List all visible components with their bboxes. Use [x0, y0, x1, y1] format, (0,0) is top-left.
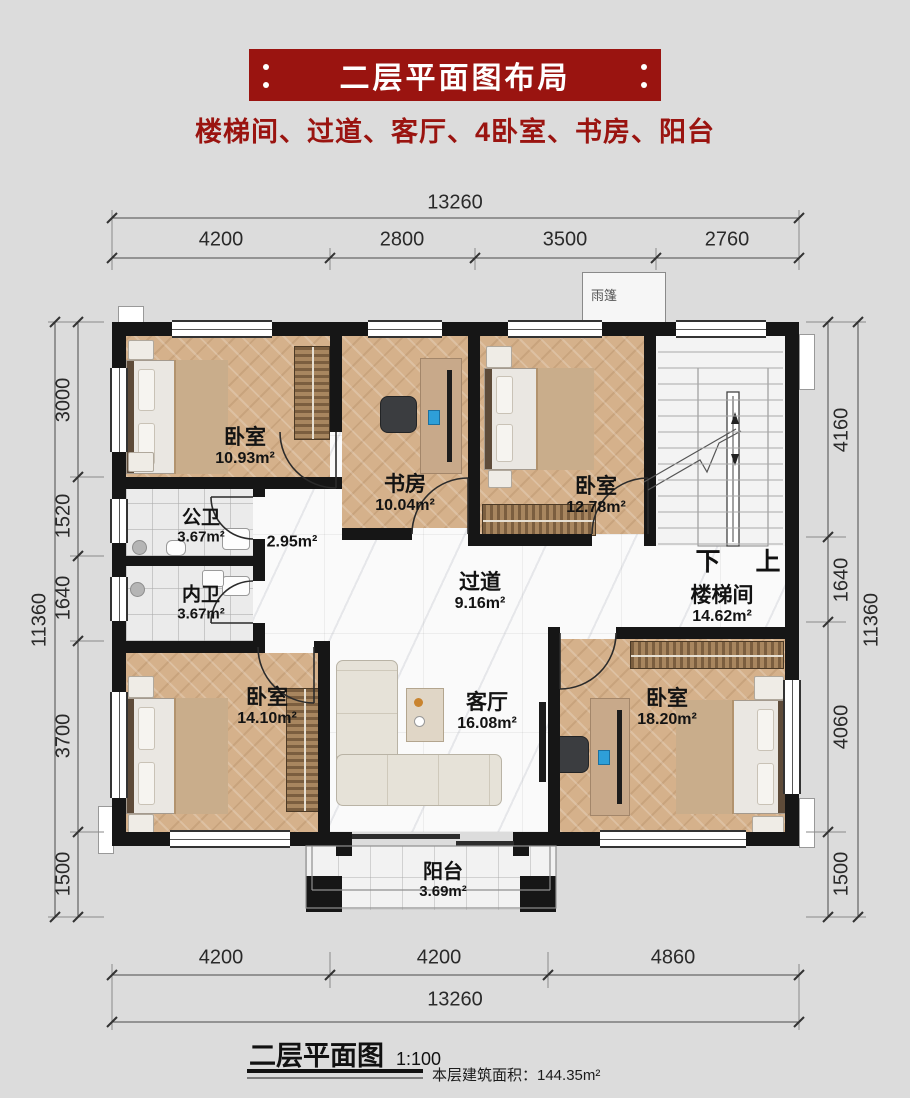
room-label-bedroom-bottom-left: 卧室 14.10m²: [237, 687, 297, 727]
wall: [468, 336, 480, 546]
table-item: [414, 716, 425, 727]
window-pane-line: [119, 499, 120, 543]
dim-left-seg-5: 1500: [53, 852, 76, 897]
desk-item: [428, 410, 440, 425]
window-pane-line: [119, 368, 120, 452]
wall: [548, 627, 560, 832]
room-label-bedroom-top-left: 卧室 10.93m²: [215, 427, 275, 467]
pilaster: [799, 798, 815, 848]
window: [172, 320, 272, 338]
window-pane-line: [119, 577, 120, 621]
desk: [590, 698, 630, 816]
room-label-bedroom-top-right: 卧室 12.78m²: [566, 476, 626, 516]
dim-bottom-seg-2: 4200: [417, 947, 462, 970]
banner-dot: [641, 64, 647, 70]
room-area: 10.04m²: [375, 497, 435, 514]
room-label-stairwell: 楼梯间 14.62m²: [691, 585, 754, 625]
page-title: 二层平面图布局: [340, 53, 571, 97]
banner-dot: [641, 82, 647, 88]
dim-left-total: 11360: [29, 593, 52, 647]
wall: [513, 832, 529, 856]
dim-top-seg-1: 4200: [199, 229, 244, 252]
room-name: 卧室: [215, 427, 275, 450]
wall: [253, 539, 265, 581]
dim-right-seg-4: 1500: [831, 852, 854, 897]
sink: [222, 528, 250, 550]
legend-underline-thin: [247, 1077, 423, 1079]
dim-left-seg-2: 1520: [53, 494, 76, 539]
desk-item: [598, 750, 610, 765]
pillow: [496, 424, 513, 462]
window-pane-line: [792, 680, 793, 794]
window: [110, 692, 128, 798]
window: [110, 577, 128, 621]
wardrobe-rail: [631, 655, 783, 657]
window-pane-line: [600, 839, 746, 840]
stair-up-label: 上: [755, 542, 780, 578]
room-area: 14.62m²: [691, 608, 754, 625]
window-pane-line: [508, 329, 602, 330]
room-label-bedroom-bottom-right: 卧室 18.20m²: [637, 688, 697, 728]
window: [110, 499, 128, 543]
window-pane-line: [676, 329, 766, 330]
wall: [336, 832, 352, 856]
legend-title: 二层平面图1:100: [249, 1034, 441, 1073]
room-name: 楼梯间: [691, 585, 754, 608]
dim-right-seg-1: 4160: [831, 408, 854, 453]
window: [110, 368, 128, 452]
wall: [126, 477, 342, 489]
shower-head: [132, 540, 147, 555]
stair-down-label: 下: [695, 542, 720, 578]
wall: [616, 627, 799, 639]
room-area: 18.20m²: [637, 711, 697, 728]
room-name: 客厅: [457, 692, 517, 715]
bed: [126, 698, 228, 814]
pillow: [138, 369, 155, 411]
dim-bottom-seg-1: 4200: [199, 947, 244, 970]
sofa-chaise: [336, 754, 502, 806]
room-area: 3.67m²: [177, 529, 225, 545]
coffee-table: [406, 688, 444, 742]
dim-right-seg-3: 4060: [831, 705, 854, 750]
pillow: [757, 763, 774, 805]
room-area: 16.08m²: [457, 715, 517, 732]
table-item: [414, 698, 423, 707]
blanket: [536, 368, 594, 470]
small-corridor-area-label: 2.95m²: [267, 533, 318, 550]
sink: [222, 576, 250, 596]
room-area: 3.67m²: [177, 606, 225, 622]
sliding-door: [456, 841, 514, 846]
window-pane-line: [172, 329, 272, 330]
room-area: 14.10m²: [237, 710, 297, 727]
nightstand: [486, 346, 512, 368]
room-area: 2.95m²: [267, 533, 318, 550]
wardrobe-rail: [312, 347, 314, 439]
room-label-inner-bath: 内卫 3.67m²: [177, 586, 225, 623]
room-area: 10.93m²: [215, 450, 275, 467]
wall: [342, 528, 412, 540]
room-area: 12.78m²: [566, 499, 626, 516]
wall: [480, 534, 592, 546]
dim-top-total: 13260: [427, 192, 483, 215]
office-chair: [380, 396, 417, 433]
balcony-column: [520, 876, 556, 912]
pillow: [138, 762, 155, 805]
bed-headboard: [485, 369, 492, 469]
room-name: 内卫: [177, 586, 225, 607]
canopy-label: 雨篷: [591, 285, 617, 304]
dim-left-seg-1: 3000: [53, 378, 76, 423]
room-name: 过道: [455, 572, 506, 595]
room-name: 卧室: [237, 687, 297, 710]
stairwell-floor: [656, 336, 785, 546]
nightstand: [128, 452, 154, 472]
shower-head: [130, 582, 145, 597]
dim-top-seg-4: 2760: [705, 229, 750, 252]
dim-left-seg-3: 1640: [53, 576, 76, 621]
room-label-study: 书房 10.04m²: [375, 474, 435, 514]
monitor: [617, 710, 622, 804]
window-pane-line: [119, 692, 120, 798]
monitor: [447, 370, 452, 462]
window: [676, 320, 766, 338]
nightstand: [128, 814, 154, 834]
wall: [126, 641, 258, 653]
room-label-living-room: 客厅 16.08m²: [457, 692, 517, 732]
desk: [420, 358, 462, 474]
legend-title-text: 二层平面图: [249, 1041, 384, 1071]
window: [508, 320, 602, 338]
room-label-public-bath: 公卫 3.67m²: [177, 509, 225, 546]
bed-headboard: [127, 699, 134, 813]
banner-dot: [263, 82, 269, 88]
pillow: [138, 707, 155, 750]
room-name: 公卫: [177, 509, 225, 530]
nightstand: [128, 340, 154, 360]
legend-underline: [247, 1069, 423, 1073]
nightstand: [754, 676, 784, 700]
room-name: 阳台: [419, 862, 467, 884]
nightstand: [488, 470, 512, 488]
wall: [644, 336, 656, 546]
title-banner: 二层平面图布局: [249, 49, 661, 101]
bed: [484, 368, 594, 470]
wall: [330, 336, 342, 432]
blanket: [174, 698, 228, 814]
room-area: 9.16m²: [455, 595, 506, 612]
room-label-balcony: 阳台 3.69m²: [419, 862, 467, 900]
balcony-column: [306, 876, 342, 912]
page-subtitle: 楼梯间、过道、客厅、4卧室、书房、阳台: [0, 110, 910, 149]
dim-right-seg-2: 1640: [831, 558, 854, 603]
window: [783, 680, 801, 794]
tv: [539, 702, 546, 782]
wardrobe: [294, 346, 330, 440]
room-name: 书房: [375, 474, 435, 497]
room-label-hallway: 过道 9.16m²: [455, 572, 506, 612]
window: [600, 830, 746, 848]
window-pane-line: [170, 839, 290, 840]
room-name: 卧室: [566, 476, 626, 499]
window: [170, 830, 290, 848]
dim-left-seg-4: 3700: [53, 714, 76, 759]
room-name: 卧室: [637, 688, 697, 711]
dim-right-total: 11360: [861, 593, 884, 647]
window-pane-line: [368, 329, 442, 330]
dim-bottom-seg-3: 4860: [651, 947, 696, 970]
nightstand: [128, 676, 154, 698]
dim-top-seg-2: 2800: [380, 229, 425, 252]
room-area: 3.69m²: [419, 884, 467, 900]
floor-plan-page: 二层平面图布局 楼梯间、过道、客厅、4卧室、书房、阳台: [0, 0, 910, 1098]
wall: [318, 641, 330, 832]
wall: [126, 556, 253, 566]
wardrobe-rail: [483, 520, 595, 522]
wardrobe: [630, 641, 784, 669]
wall: [253, 477, 265, 497]
wardrobe-rail: [304, 689, 306, 811]
banner-dot: [263, 64, 269, 70]
pillow: [496, 376, 513, 414]
pillow: [757, 709, 774, 751]
sliding-door: [352, 834, 460, 839]
legend-area-note: 本层建筑面积：144.35m²: [432, 1064, 600, 1085]
dim-bottom-total: 13260: [427, 989, 483, 1012]
pilaster: [799, 334, 815, 390]
dim-top-seg-3: 3500: [543, 229, 588, 252]
window: [368, 320, 442, 338]
